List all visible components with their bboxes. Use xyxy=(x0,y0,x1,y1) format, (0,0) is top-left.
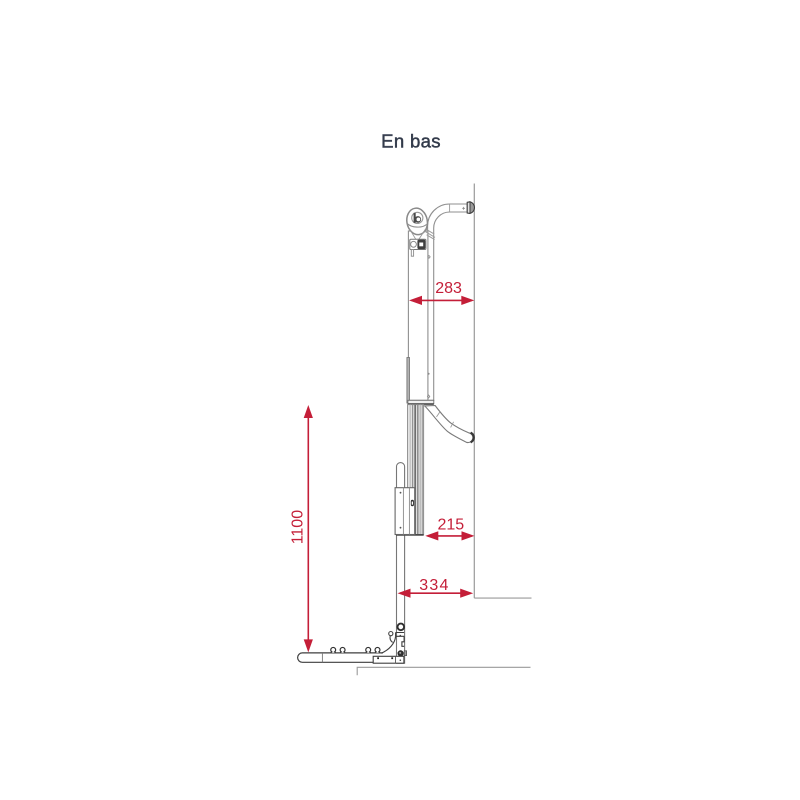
svg-text:1100: 1100 xyxy=(290,510,307,545)
svg-text:334: 334 xyxy=(419,577,449,594)
svg-text:215: 215 xyxy=(437,517,464,534)
svg-text:283: 283 xyxy=(435,280,462,297)
svg-text:En bas: En bas xyxy=(381,130,441,151)
